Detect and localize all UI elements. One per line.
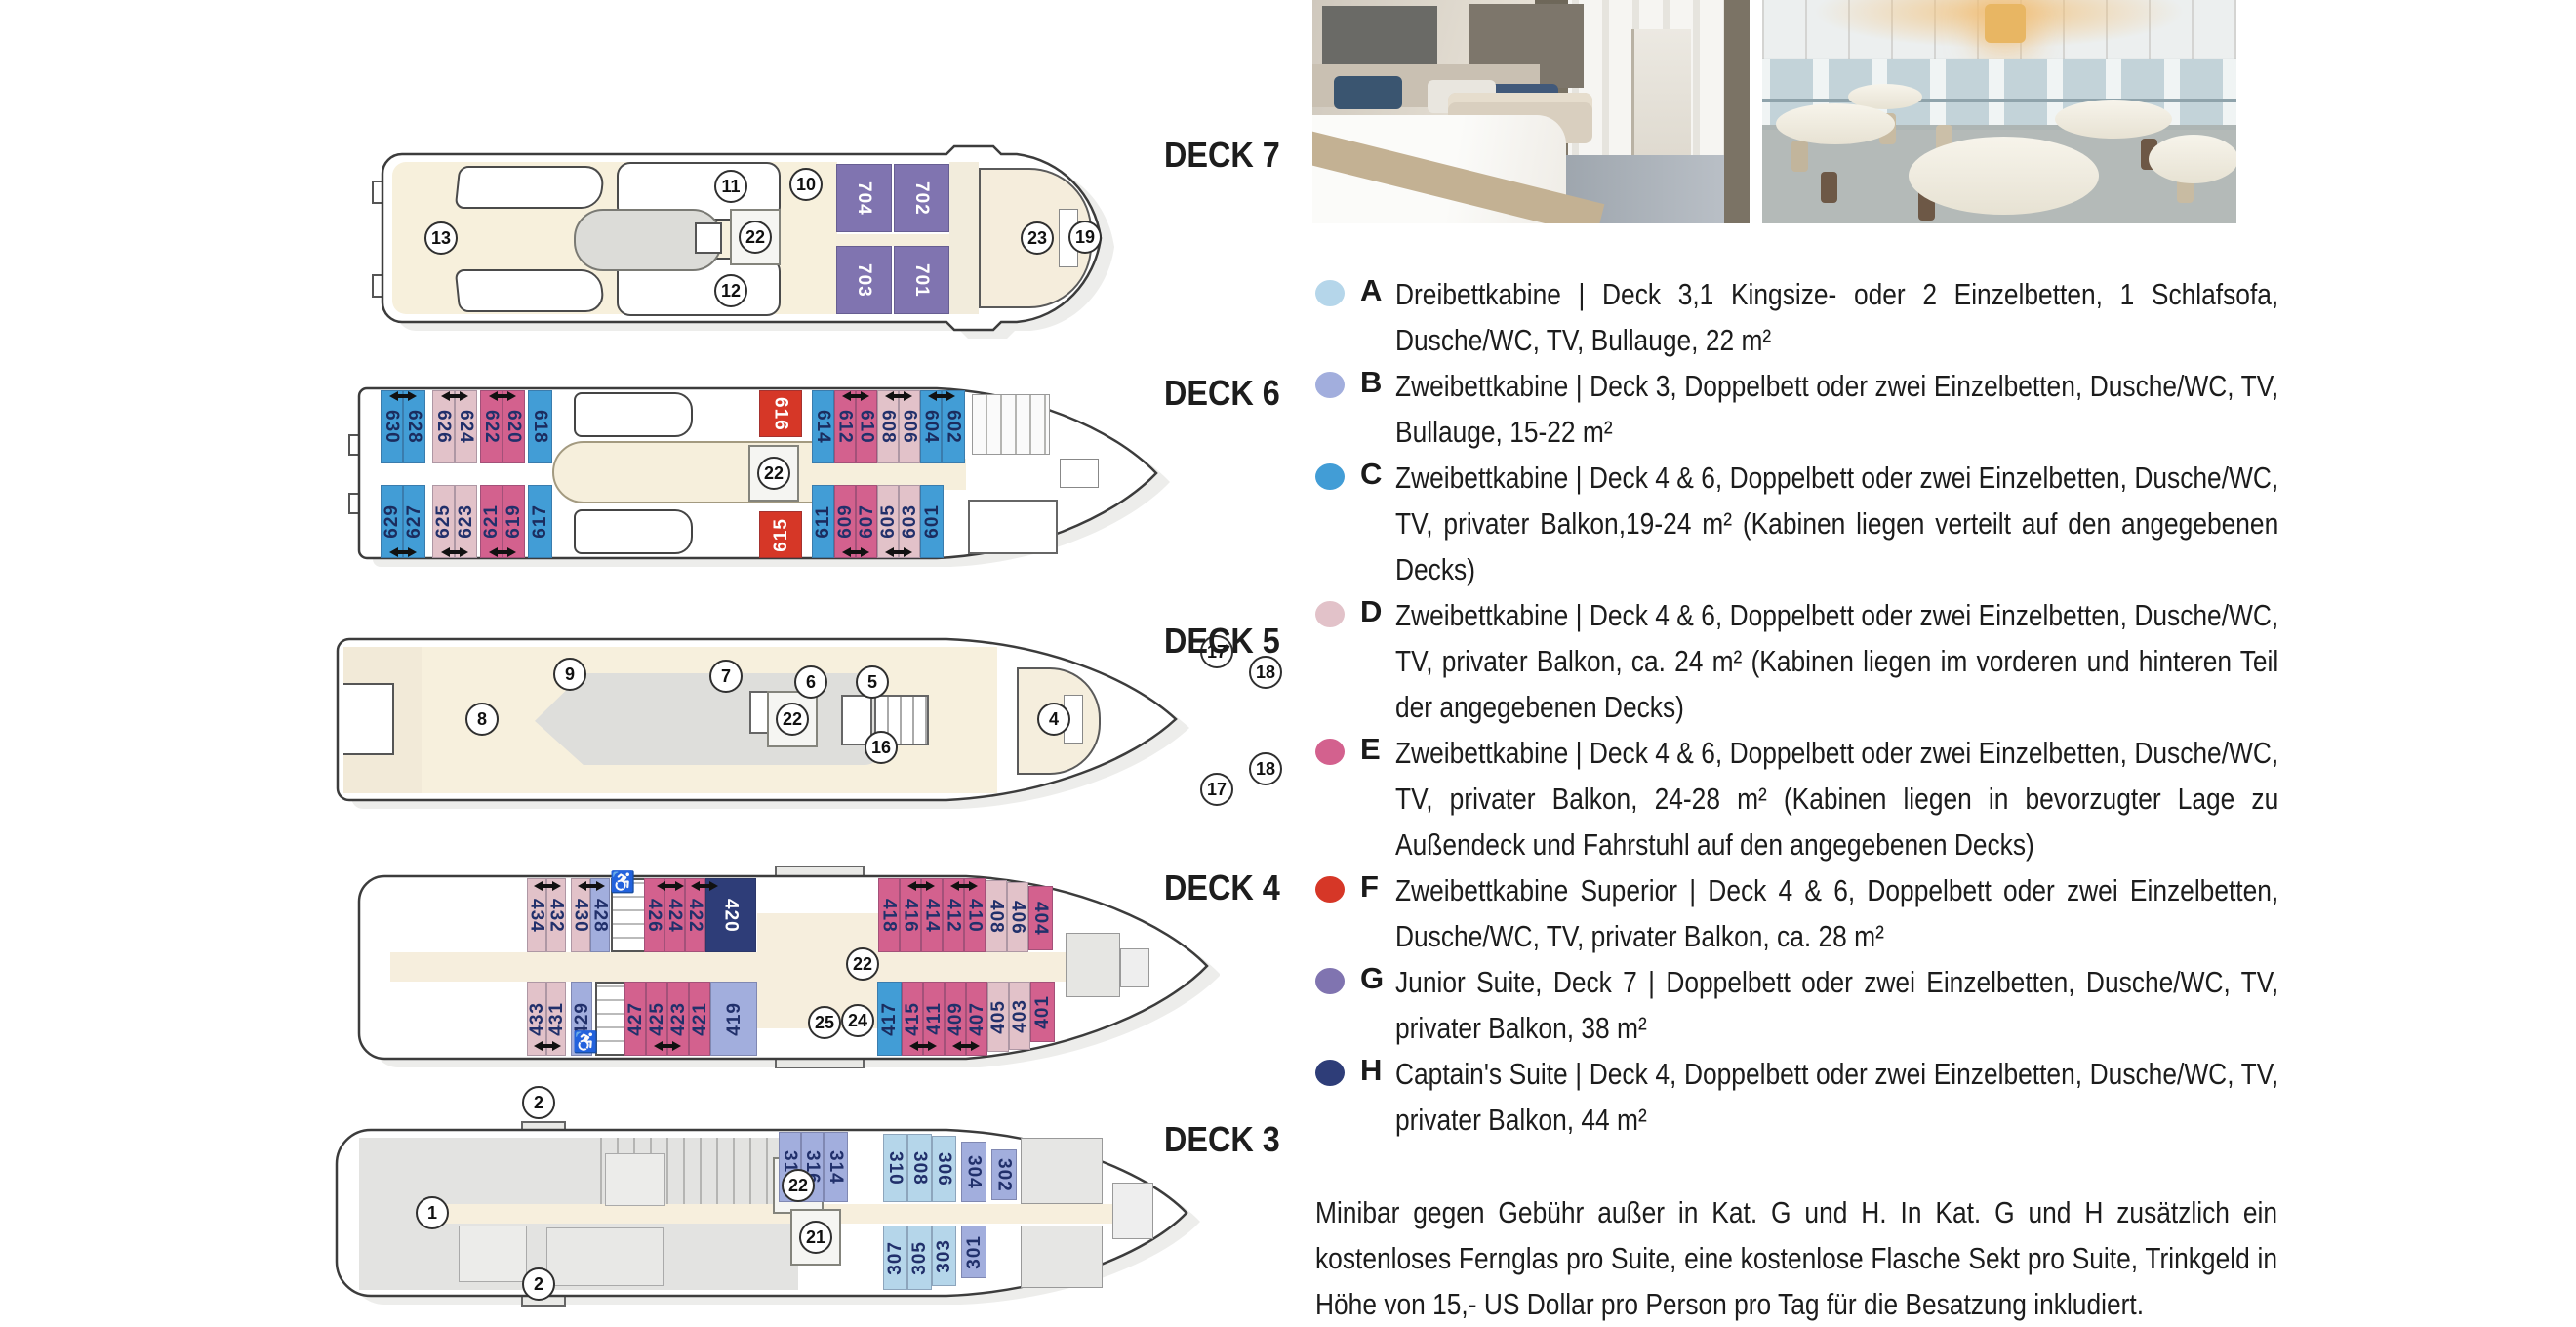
marker-17: 17 bbox=[1200, 773, 1233, 806]
category-d-letter: D bbox=[1360, 594, 1382, 629]
category-g-letter: G bbox=[1360, 961, 1384, 996]
marker-2: 2 bbox=[522, 1086, 555, 1119]
category-d-text: Zweibettkabine | Deck 4 & 6, Doppelbett … bbox=[1395, 592, 2278, 730]
deck6-stairs bbox=[972, 394, 1050, 455]
restaurant-photo bbox=[1762, 0, 2236, 223]
deck6-rooms bbox=[968, 500, 1058, 554]
legend-item-e: E Zweibettkabine | Deck 4 & 6, Doppelbet… bbox=[1315, 730, 2389, 867]
deck7-lounge-window bbox=[1059, 209, 1078, 267]
deck4-stairs bbox=[611, 878, 646, 952]
photo-table bbox=[2149, 135, 2236, 183]
category-h-dot bbox=[1315, 1060, 1345, 1086]
category-h-text: Captain's Suite | Deck 4, Doppelbett ode… bbox=[1395, 1051, 2278, 1143]
category-e-letter: E bbox=[1360, 732, 1381, 767]
deck-5-label: DECK 5 bbox=[1164, 621, 1280, 662]
category-f-text: Zweibettkabine Superior | Deck 4 & 6, Do… bbox=[1395, 867, 2278, 959]
category-a-text: Dreibettkabine | Deck 3,1 Kingsize- oder… bbox=[1395, 271, 2278, 363]
deck4-bow-room bbox=[1066, 933, 1120, 997]
category-c-dot bbox=[1315, 463, 1345, 490]
category-c-letter: C bbox=[1360, 457, 1382, 492]
deck-6-label: DECK 6 bbox=[1164, 373, 1280, 414]
legend-item-f: F Zweibettkabine Superior | Deck 4 & 6, … bbox=[1315, 867, 2389, 959]
deck3-room bbox=[605, 1153, 665, 1206]
category-h-letter: H bbox=[1360, 1053, 1382, 1088]
deck5-stairs bbox=[874, 695, 929, 745]
minibar-footnote: Minibar gegen Gebühr außer in Kat. G und… bbox=[1315, 1189, 2277, 1327]
deck7-lifeboat bbox=[455, 166, 606, 209]
deck5-stern-notch bbox=[343, 683, 394, 755]
category-b-letter: B bbox=[1360, 365, 1382, 400]
marker-18: 18 bbox=[1249, 752, 1282, 785]
deck3-room bbox=[546, 1227, 664, 1286]
category-d-dot bbox=[1315, 601, 1345, 627]
category-c-text: Zweibettkabine | Deck 4 & 6, Doppelbett … bbox=[1395, 455, 2278, 592]
deck6-tender bbox=[574, 509, 693, 554]
deck5-lounge-window bbox=[1064, 695, 1083, 744]
suite-interior-photo bbox=[1312, 0, 1750, 223]
deck7-vestibule bbox=[949, 162, 979, 314]
photo-table bbox=[2055, 100, 2172, 139]
deck-7-label: DECK 7 bbox=[1164, 135, 1280, 176]
deck3-bow-room-small bbox=[1112, 1183, 1153, 1239]
category-g-text: Junior Suite, Deck 7 | Doppelbett oder z… bbox=[1395, 959, 2278, 1051]
photo-chandelier bbox=[1985, 4, 2026, 43]
deck6-tender bbox=[574, 392, 693, 437]
photo-pillows bbox=[1334, 76, 1402, 109]
cabin-category-legend: A Dreibettkabine | Deck 3,1 Kingsize- od… bbox=[1315, 271, 2389, 1143]
deck3-corridor bbox=[429, 1204, 1132, 1224]
deck5-stairs bbox=[841, 695, 872, 745]
deck3-bow-room bbox=[1021, 1138, 1103, 1204]
deck6-lounge-spine bbox=[552, 441, 845, 503]
photo-table bbox=[1776, 103, 1895, 144]
legend-item-h: H Captain's Suite | Deck 4, Doppelbett o… bbox=[1315, 1051, 2389, 1143]
deck7-suite-corridor bbox=[836, 234, 949, 246]
deck7-lifeboat bbox=[455, 269, 606, 312]
deck6-room-small bbox=[1060, 459, 1099, 488]
deck5-room-small bbox=[749, 691, 779, 734]
category-e-text: Zweibettkabine | Deck 4 & 6, Doppelbett … bbox=[1395, 730, 2278, 867]
deck3-bow-room bbox=[1021, 1226, 1103, 1288]
deck3-room bbox=[459, 1226, 527, 1282]
legend-item-b: B Zweibettkabine | Deck 3, Doppelbett od… bbox=[1315, 363, 2389, 455]
legend-item-c: C Zweibettkabine | Deck 4 & 6, Doppelbet… bbox=[1315, 455, 2389, 592]
deck-4-label: DECK 4 bbox=[1164, 867, 1280, 908]
category-b-text: Zweibettkabine | Deck 3, Doppelbett oder… bbox=[1395, 363, 2278, 455]
legend-item-g: G Junior Suite, Deck 7 | Doppelbett oder… bbox=[1315, 959, 2389, 1051]
category-b-dot bbox=[1315, 372, 1345, 398]
category-e-dot bbox=[1315, 739, 1345, 765]
category-g-dot bbox=[1315, 968, 1345, 994]
photo-curtain bbox=[1724, 0, 1750, 223]
category-a-letter: A bbox=[1360, 273, 1382, 308]
category-f-letter: F bbox=[1360, 869, 1379, 905]
category-f-dot bbox=[1315, 876, 1345, 903]
legend-item-d: D Zweibettkabine | Deck 4 & 6, Doppelbet… bbox=[1315, 592, 2389, 730]
deck4-stairs bbox=[595, 982, 626, 1056]
legend-item-a: A Dreibettkabine | Deck 3,1 Kingsize- od… bbox=[1315, 271, 2389, 363]
deck4-bow-room-small bbox=[1120, 948, 1149, 987]
deck5-restaurant-block bbox=[535, 673, 882, 765]
deck6-fwd-corridor bbox=[802, 459, 966, 490]
deck4-lobby bbox=[757, 913, 878, 1028]
photo-horizon bbox=[1762, 99, 2236, 102]
deck-3-label: DECK 3 bbox=[1164, 1119, 1280, 1160]
deck4-corridor bbox=[390, 952, 1066, 982]
deck7-room bbox=[695, 222, 722, 254]
category-a-dot bbox=[1315, 280, 1345, 306]
photo-table bbox=[1909, 137, 2099, 215]
